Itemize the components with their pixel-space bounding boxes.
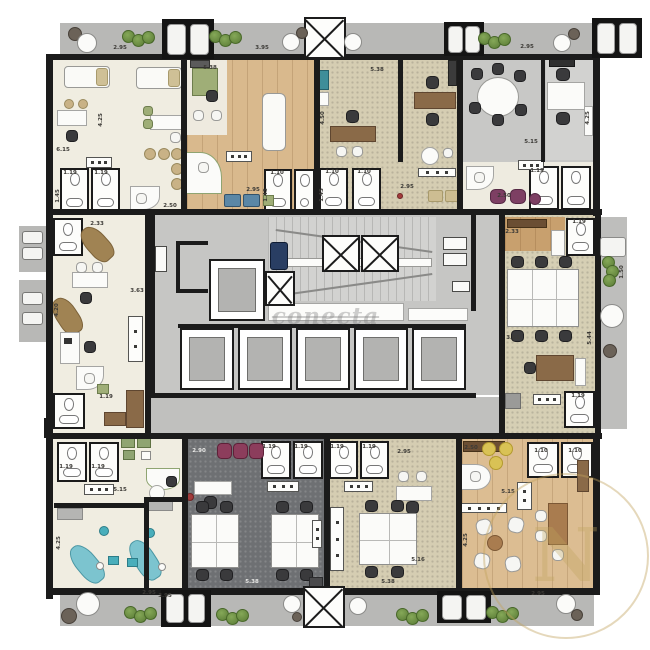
dim-label: 2.90 [192, 448, 206, 454]
pouf [529, 193, 541, 205]
office-chair [535, 256, 548, 268]
hygiene-counter [344, 481, 373, 492]
office-chair [276, 501, 289, 513]
bar-cabinet [577, 460, 589, 492]
terrace-table [283, 595, 301, 613]
sink [141, 451, 151, 460]
sink-icon [366, 465, 383, 474]
fixture-icon [134, 345, 137, 348]
cabinet [319, 70, 329, 90]
wall [456, 437, 462, 593]
office-chair [559, 256, 572, 268]
dim-label: 5.38 [370, 67, 384, 73]
meeting-chair [471, 68, 483, 80]
wall [182, 437, 188, 593]
fixture-icon [336, 538, 339, 541]
ac-condenser [619, 23, 637, 54]
cabinet [128, 316, 143, 362]
plant-icon [416, 609, 429, 622]
guest-chair [352, 146, 363, 157]
ac-condenser [442, 595, 462, 620]
wardrobe [126, 390, 144, 428]
fixture-icon [105, 488, 108, 491]
fixture-icon [523, 490, 526, 493]
dim-label: 4.25 [56, 536, 62, 550]
office-chair [166, 476, 177, 487]
terrace-table [344, 33, 362, 51]
wall [44, 418, 53, 438]
fixture-icon [546, 398, 549, 401]
office-chair [66, 130, 78, 142]
guest-chair [92, 262, 103, 273]
office-chair [206, 90, 218, 102]
pouf [489, 456, 503, 470]
spittoon [158, 563, 166, 571]
fixture-icon [523, 499, 526, 502]
bed-pillow [96, 68, 108, 86]
wall [150, 393, 476, 398]
shaft-duct [452, 281, 470, 292]
planter [296, 27, 308, 39]
dim-label: 2.50 [464, 445, 478, 451]
ac-condenser [188, 594, 205, 623]
plant-icon [603, 274, 616, 287]
corridor-floor [151, 397, 499, 434]
ac-unit [22, 231, 43, 244]
wall [457, 54, 463, 215]
dim-label: 1.19 [91, 464, 105, 470]
dim-label: 5.15 [524, 139, 538, 145]
bathroom [53, 393, 85, 429]
dim-label: 5.15 [501, 489, 515, 495]
planter-shrubs [478, 32, 512, 56]
toilet-icon [99, 447, 109, 460]
terrace-table [76, 592, 100, 616]
shaft-x [265, 271, 295, 306]
wall [178, 324, 466, 328]
desk [536, 355, 574, 381]
fixture-icon [316, 537, 319, 540]
plant-icon [229, 31, 242, 44]
fixture-icon [238, 155, 241, 158]
balcony-left-2 [19, 280, 47, 342]
fixture-icon [336, 521, 339, 524]
elevator-lobby [408, 308, 468, 321]
office-chair [220, 501, 233, 513]
shaft-duct [443, 253, 467, 266]
dim-label: 5.44 [587, 331, 593, 345]
fixture-icon [487, 507, 490, 510]
bathroom [53, 218, 83, 256]
elevator-cab [247, 337, 283, 381]
plant-icon [498, 33, 511, 46]
desk-divider [532, 270, 533, 326]
fixture-icon [468, 507, 471, 510]
dim-label: 2.50 [163, 203, 177, 209]
office-chair [426, 76, 439, 89]
shelf [319, 92, 329, 106]
bathroom [294, 169, 315, 212]
terrace-table [600, 304, 624, 328]
elevator-4 [354, 328, 408, 390]
office-chair [391, 566, 404, 578]
shaft-x [304, 17, 346, 59]
ac-unit-frame [592, 18, 642, 58]
cabinet [575, 358, 586, 386]
side-table [97, 384, 109, 394]
monitor [64, 338, 72, 344]
fridge [551, 230, 565, 256]
corner-desk [57, 508, 83, 520]
hygiene-counter [84, 484, 114, 495]
elevator-5 [412, 328, 466, 390]
bathroom [57, 442, 87, 482]
reception-chair [198, 162, 209, 173]
dim-label: 5.38 [381, 579, 395, 585]
workstation-island [191, 514, 239, 568]
wall [181, 54, 187, 215]
sink-icon [572, 242, 589, 251]
dim-label: 2.95 [113, 45, 127, 51]
meeting-chair [469, 102, 481, 114]
workstation-island [507, 269, 579, 327]
shaft-x [322, 235, 360, 272]
waiting-chair [144, 148, 156, 160]
desk [330, 126, 376, 142]
fixture-icon [536, 164, 539, 167]
sink-icon [59, 415, 79, 424]
dim-label: 1.19 [262, 444, 276, 450]
plant-icon [142, 31, 155, 44]
plant-icon [144, 607, 157, 620]
pouf [482, 442, 496, 456]
fixture-icon [350, 485, 353, 488]
ac-condenser [448, 26, 463, 53]
sink-icon [325, 197, 342, 206]
plant-pot [397, 193, 403, 199]
wall [144, 497, 188, 502]
sink-icon [97, 198, 114, 207]
dim-label: 3.95 [158, 593, 172, 599]
dim-label: 1.19 [572, 219, 586, 225]
ac-condenser [190, 24, 209, 55]
planter-shrubs [396, 608, 430, 632]
elevator-cab [189, 337, 225, 381]
service-elevator [209, 259, 265, 321]
wall [499, 209, 505, 439]
dim-label: 5.38 [245, 579, 259, 585]
ac-unit [22, 292, 43, 305]
meeting-chair [492, 63, 504, 75]
office-chair [391, 500, 404, 512]
shaft-x [361, 235, 399, 272]
dental-unit [108, 556, 119, 565]
coffee-table [487, 535, 503, 551]
planter [292, 612, 302, 622]
office-chair [365, 500, 378, 512]
stair-chair-lift [270, 242, 288, 270]
dim-label: 1.45 [55, 189, 61, 203]
office-chair [511, 256, 524, 268]
meeting-chair [515, 104, 527, 116]
guest-chair [336, 146, 347, 157]
fixture-icon [244, 155, 247, 158]
fixture-icon [357, 485, 360, 488]
fixture-icon [316, 528, 319, 531]
fixture-icon [104, 161, 107, 164]
appliance [517, 482, 532, 510]
sink-icon [533, 464, 553, 473]
office-chair [346, 110, 359, 123]
toilet-icon [67, 447, 77, 460]
office-chair [80, 292, 92, 304]
dental-unit [127, 558, 138, 567]
planter-shrubs [124, 606, 158, 630]
sink-icon [567, 196, 585, 205]
desk [60, 332, 80, 364]
dim-label: 5.16 [411, 557, 425, 563]
wall [176, 289, 208, 293]
office-chair [170, 132, 181, 143]
elevator-1 [180, 328, 234, 390]
ac-condenser [597, 23, 615, 54]
shaft-x [303, 586, 345, 628]
dental-stool [99, 526, 109, 536]
meeting-table [477, 77, 519, 117]
dim-label: 1.45 [263, 188, 269, 202]
dim-label: 1.19 [63, 170, 77, 176]
dim-label: 2.33 [505, 229, 519, 235]
wall [144, 500, 149, 590]
guest-chair [143, 106, 153, 116]
office-chair [559, 330, 572, 342]
hygiene-counter [86, 157, 112, 168]
reception-desk [194, 481, 232, 495]
dim-label: 1.10 [270, 170, 284, 176]
dim-label: 1.50 [619, 265, 625, 279]
ac-unit [22, 312, 43, 325]
office-chair [556, 112, 570, 125]
reception-chair [84, 373, 95, 384]
wall [46, 54, 53, 599]
dim-label: 1.10 [357, 169, 371, 175]
dim-label: 2.95 [531, 591, 545, 597]
dim-label: 1.10 [325, 169, 339, 175]
pouf [499, 442, 513, 456]
plant-icon [506, 607, 519, 620]
planter [568, 28, 580, 40]
sink-icon [335, 465, 352, 474]
fixture-icon [445, 171, 448, 174]
dim-label: 2.95 [142, 590, 156, 596]
fixture-icon [134, 330, 137, 333]
dim-label: 3.63 [130, 288, 144, 294]
guest-chair [78, 99, 88, 109]
desk [547, 82, 585, 110]
hygiene-counter [226, 151, 252, 162]
armchair [233, 443, 248, 459]
fixture-icon [336, 554, 339, 557]
terrace-table [77, 33, 97, 53]
dim-label: 3.95 [255, 45, 269, 51]
dim-label: 1.19 [94, 170, 108, 176]
desk [72, 272, 108, 288]
plant-icon [236, 609, 249, 622]
office-chair [426, 113, 439, 126]
kitchen-counter [507, 219, 547, 228]
cabinet [104, 412, 126, 426]
reception-chair [470, 471, 481, 482]
bathroom [89, 442, 119, 482]
dim-label: 1.19 [362, 444, 376, 450]
wall [541, 57, 545, 162]
wall [46, 209, 602, 215]
wall [150, 211, 155, 398]
wall [471, 211, 476, 311]
cabinet [330, 507, 344, 571]
waiting-bench [224, 194, 241, 207]
armchair [510, 189, 526, 204]
credenza [418, 168, 456, 177]
meeting-chair [514, 70, 526, 82]
dim-label: 4.50 [320, 111, 326, 125]
office-chair [196, 569, 209, 581]
guest-chair [535, 510, 547, 522]
desk [57, 110, 87, 126]
sink-icon [299, 465, 317, 474]
toilet-icon [63, 223, 73, 236]
office-chair [300, 501, 313, 513]
guest-chair [76, 262, 87, 273]
fixture-icon [530, 164, 533, 167]
dining-table [548, 503, 568, 545]
wall [176, 241, 180, 293]
fixture-icon [365, 485, 368, 488]
terrace-table [349, 597, 367, 615]
floor-plan: conecta N 2.953.952.954.256.151.191.191.… [0, 0, 650, 650]
sink-icon [300, 198, 309, 207]
planter-shrubs [216, 608, 250, 632]
fixture-icon [231, 155, 234, 158]
toilet-icon [300, 174, 310, 187]
office-chair [556, 68, 570, 81]
guest-chair [64, 99, 74, 109]
dim-label: 4.25 [463, 533, 469, 547]
exam-table [262, 93, 286, 151]
spittoon [96, 562, 104, 570]
shelf [461, 503, 507, 513]
reception-chair [474, 172, 485, 183]
hygiene-counter [533, 394, 561, 405]
guest-chair [143, 119, 153, 129]
meeting-table [421, 147, 439, 165]
desk-divider [360, 540, 416, 541]
bed-pillow [168, 69, 180, 87]
fixture-icon [290, 485, 293, 488]
dim-label: 1.19 [330, 444, 344, 450]
dim-label: 1.19 [571, 393, 585, 399]
desk-divider [192, 542, 238, 543]
toilet-icon [64, 398, 74, 411]
office-chair [524, 362, 536, 374]
fixture-icon [282, 485, 285, 488]
planter [571, 609, 583, 621]
fixture-icon [538, 398, 541, 401]
fixture-icon [553, 398, 556, 401]
office-chair [365, 566, 378, 578]
waiting-bench [243, 194, 260, 207]
fixture-icon [91, 161, 94, 164]
desk-divider [216, 515, 217, 567]
dim-label: 2.33 [90, 221, 104, 227]
elevator-3 [296, 328, 350, 390]
ac-condenser [167, 24, 186, 55]
guest-chair [535, 530, 547, 542]
dim-label: 1.19 [530, 168, 544, 174]
dim-label: 2.95 [246, 187, 260, 193]
desk [396, 486, 432, 501]
bathroom [561, 166, 591, 210]
guest-chair [211, 110, 222, 121]
guest-chair [443, 148, 453, 158]
desk [150, 115, 182, 130]
fixture-icon [273, 485, 276, 488]
reception-chair [136, 193, 147, 204]
sink-icon [267, 465, 285, 474]
sink-icon [66, 198, 83, 207]
toilet-icon [571, 171, 581, 184]
dim-label: 1.45 [319, 188, 325, 202]
fixture-icon [98, 488, 101, 491]
wall [54, 503, 147, 508]
wall [593, 433, 600, 595]
dim-label: 1.10 [534, 448, 548, 454]
fixture-icon [523, 164, 526, 167]
fixture-icon [436, 171, 439, 174]
desk [414, 92, 456, 109]
terrace-bench [600, 237, 626, 257]
shaft-duct [443, 237, 467, 250]
fixture-icon [98, 161, 101, 164]
planter [603, 344, 617, 358]
office-chair [276, 569, 289, 581]
ac-unit [22, 247, 43, 260]
guest-chair [193, 110, 204, 121]
elevator-cab [421, 337, 457, 381]
sink-icon [570, 414, 589, 423]
dim-label: 2.95 [520, 44, 534, 50]
wall [176, 241, 208, 245]
ac-condenser [466, 595, 486, 620]
guest-chair [398, 471, 409, 482]
sink-icon [59, 242, 77, 251]
wall [398, 57, 403, 162]
waiting-chair [158, 148, 170, 160]
dim-label: 1.10 [568, 448, 582, 454]
guest-chair [552, 549, 564, 561]
fixture-icon [90, 488, 93, 491]
planter [61, 608, 77, 624]
dim-label: 4.25 [585, 111, 591, 125]
sink-icon [358, 197, 375, 206]
dim-label: 5.38 [203, 65, 217, 71]
ac-unit-frame [162, 19, 214, 59]
office-chair [220, 569, 233, 581]
ac-unit-frame [437, 591, 491, 623]
dim-label: 1.19 [59, 464, 73, 470]
desk-divider [389, 514, 390, 564]
fixture-icon [478, 507, 481, 510]
